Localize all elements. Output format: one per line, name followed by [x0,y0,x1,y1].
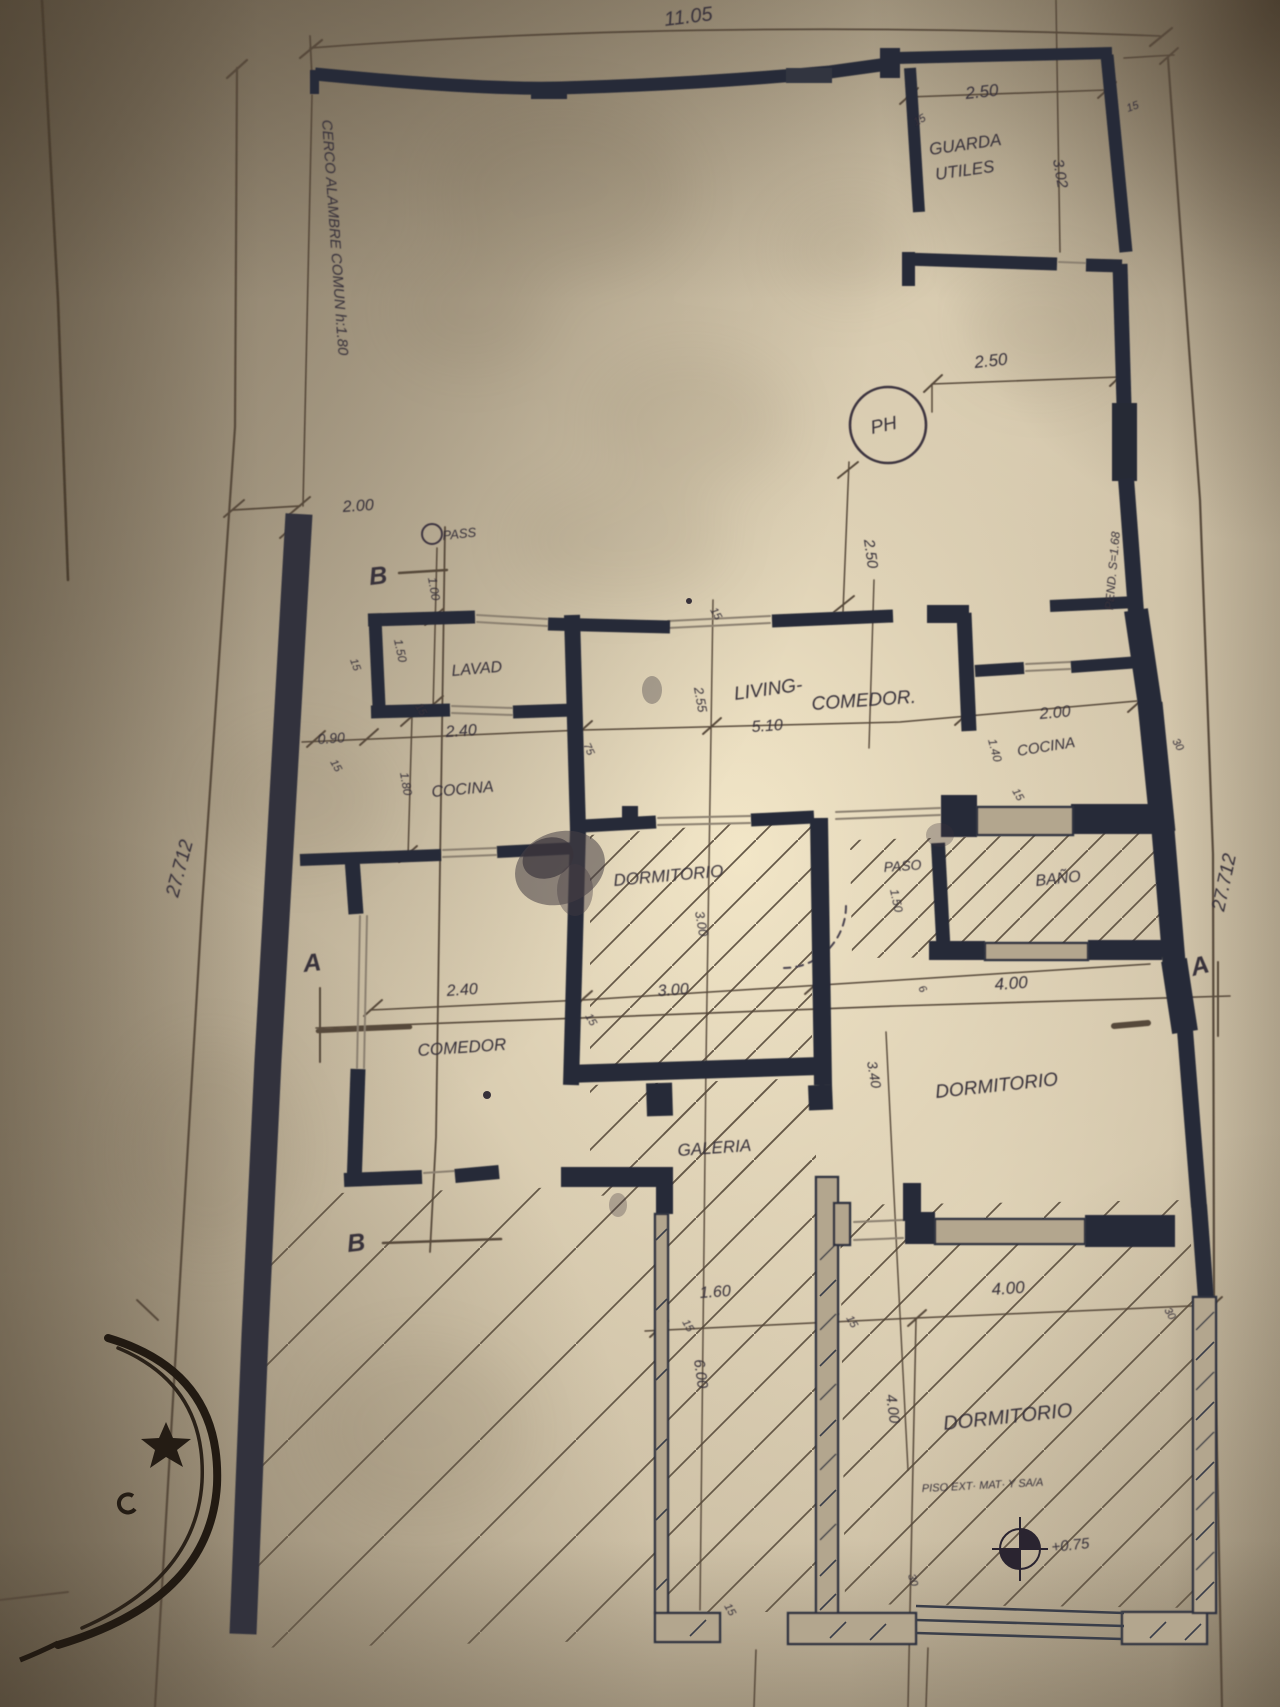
svg-text:3.00: 3.00 [657,981,689,1000]
svg-text:2.40: 2.40 [445,981,478,1000]
svg-text:2.40: 2.40 [444,722,477,741]
svg-text:4.00: 4.00 [994,973,1029,994]
svg-text:2.50: 2.50 [972,350,1008,373]
svg-text:2.00: 2.00 [341,497,374,516]
svg-text:B: B [346,1228,367,1258]
svg-text:A: A [301,948,323,978]
svg-text:PASO: PASO [883,856,922,875]
svg-text:2.50: 2.50 [963,81,999,104]
svg-text:2.00: 2.00 [1038,703,1072,723]
svg-text:4.00: 4.00 [991,1278,1026,1299]
svg-text:B: B [368,561,389,591]
svg-text:0.90: 0.90 [317,729,346,747]
svg-text:5.10: 5.10 [751,717,783,736]
svg-text:1.60: 1.60 [699,1283,731,1302]
